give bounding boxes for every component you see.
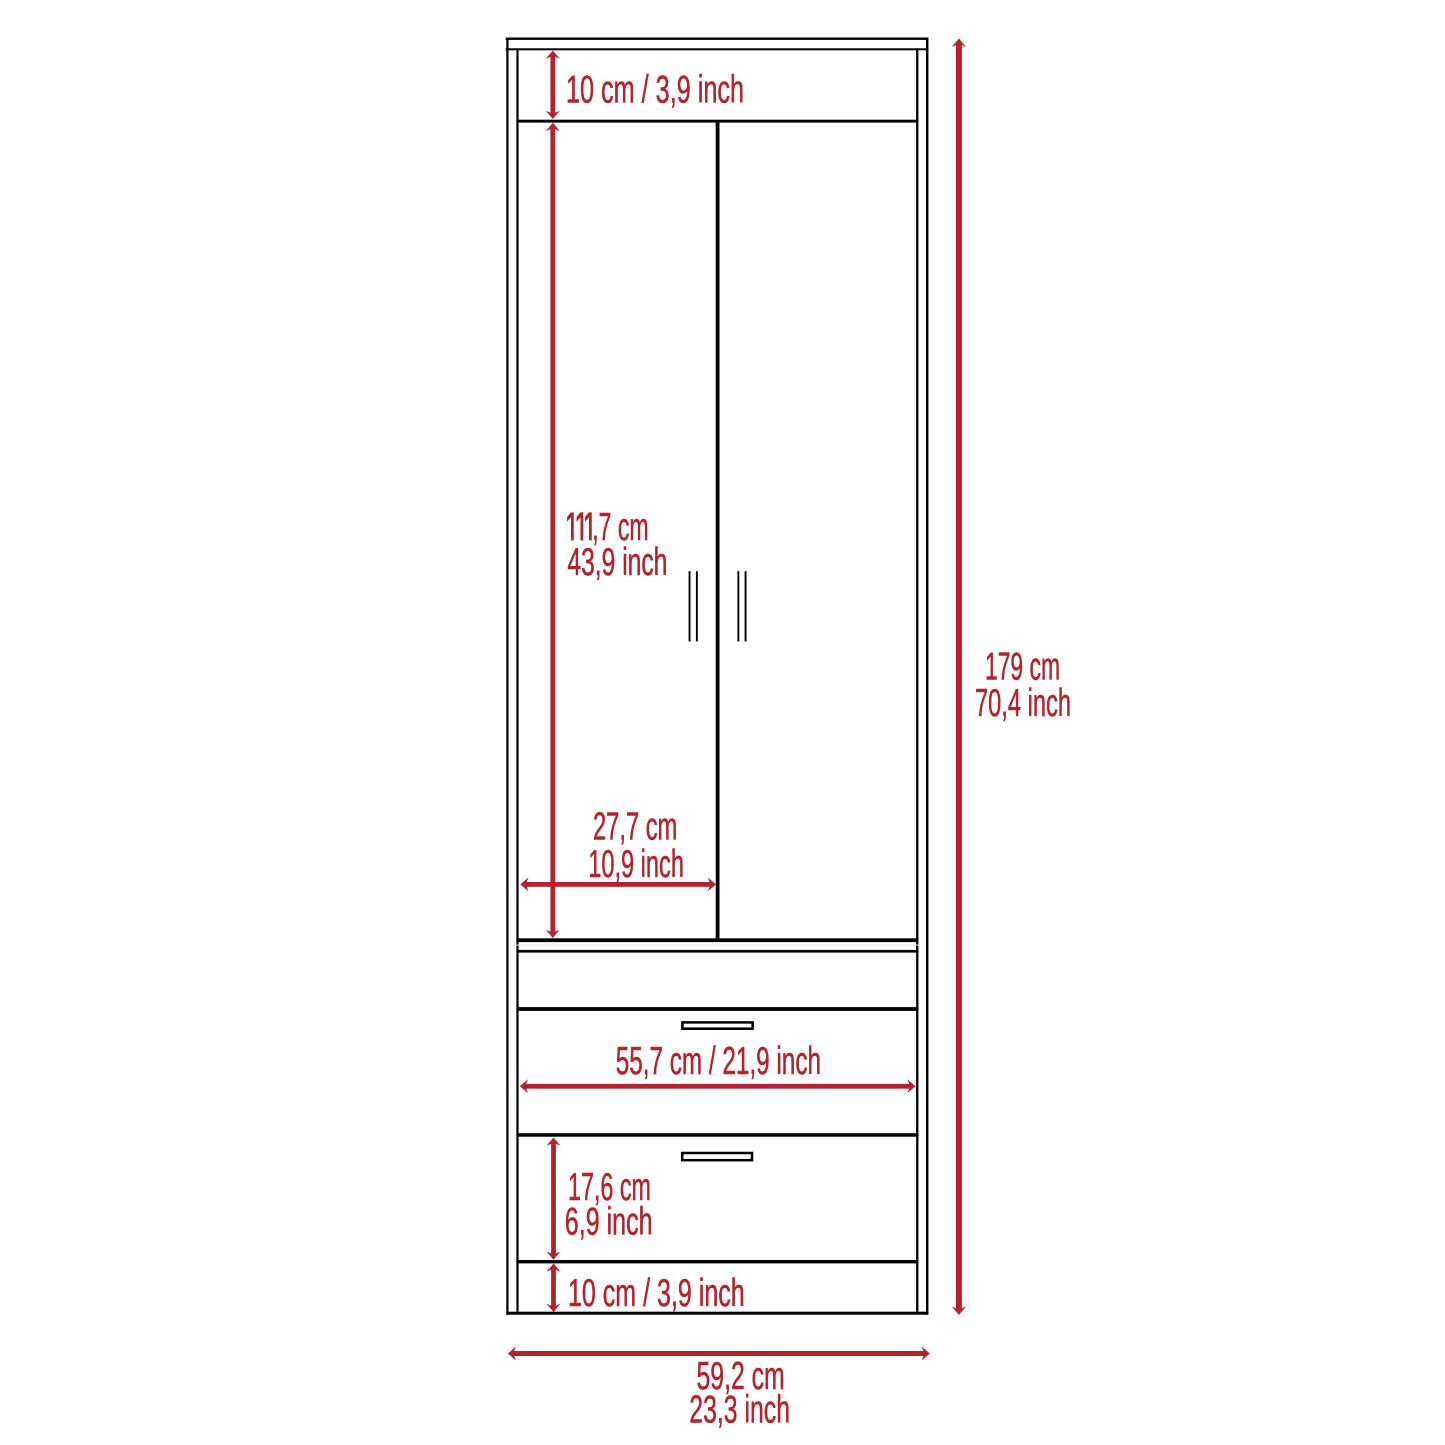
svg-text:70,4 inch: 70,4 inch [975, 682, 1071, 725]
svg-text:10 cm / 3,9 inch: 10 cm / 3,9 inch [568, 1272, 745, 1315]
svg-text:55,7 cm / 21,9 inch: 55,7 cm / 21,9 inch [616, 1040, 821, 1083]
svg-text:6,9 inch: 6,9 inch [565, 1201, 653, 1244]
svg-text:23,3 inch: 23,3 inch [689, 1388, 790, 1431]
svg-text:27,7 cm: 27,7 cm [593, 805, 677, 848]
svg-text:10 cm / 3,9 inch: 10 cm / 3,9 inch [566, 68, 744, 111]
svg-text:43,9 inch: 43,9 inch [567, 541, 667, 584]
svg-text:10,9 inch: 10,9 inch [588, 843, 684, 886]
